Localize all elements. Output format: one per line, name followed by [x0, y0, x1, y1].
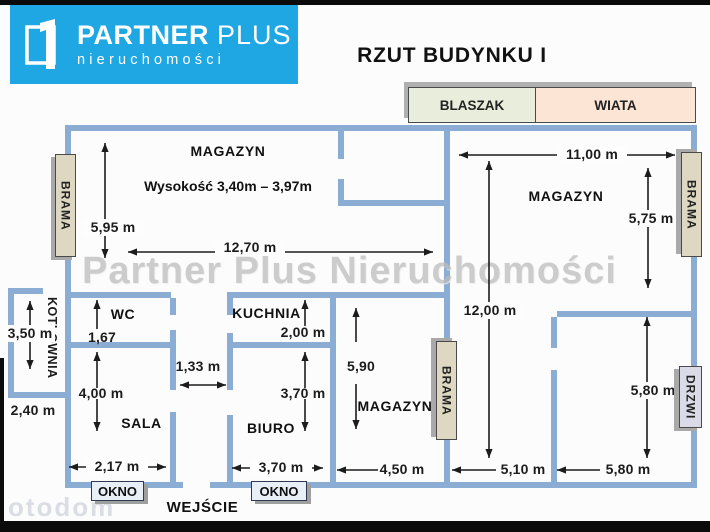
dim-sala-width: 2,17 m — [86, 458, 148, 475]
dim-middle-bottom-width: 5,10 m — [496, 461, 550, 477]
logo-subtitle: nieruchomości — [77, 53, 292, 68]
dim-magazyn-bottom-width: 4,50 m — [374, 461, 430, 477]
drzwi-door: DRZWI — [679, 366, 702, 428]
dim-wc-depth: 1,67 — [82, 329, 122, 345]
scan-artifact-left — [0, 358, 4, 532]
legend-blaszak: BLASZAK — [408, 87, 536, 123]
room-label-kuchnia: KUCHNIA — [229, 305, 304, 321]
logo-one-icon — [24, 17, 68, 73]
agency-logo: PARTNERPLUS nieruchomości — [10, 5, 298, 84]
room-label-kotlownia: KOTŁOWNIA — [45, 297, 59, 389]
legend-wiata: WIATA — [536, 87, 696, 123]
floor-plan-image: PARTNERPLUS nieruchomości RZUT BUDYNKU I… — [0, 0, 710, 532]
room-label-wc: WC — [108, 306, 138, 322]
brama-middle-gate: BRAMA — [436, 341, 457, 440]
room-label-magazyn-top-right: MAGAZYN — [516, 188, 616, 204]
brama-right-gate: BRAMA — [681, 152, 702, 257]
room-label-magazyn-top-left: MAGAZYN — [178, 143, 278, 159]
scan-artifact-bottom — [0, 521, 710, 532]
dim-kotlownia-width: 2,40 m — [7, 402, 59, 418]
okno-left-window: OKNO — [91, 481, 144, 501]
logo-brand-light: PLUS — [217, 20, 292, 50]
dim-sala-height: 4,00 m — [70, 385, 132, 401]
dim-magazyn-bottom-height: 5,90 — [338, 358, 384, 374]
dim-kuchnia-depth: 2,00 m — [272, 324, 334, 340]
height-note: Wysokość 3,40m – 3,97m — [128, 178, 328, 194]
dim-right-section-height: 12,00 m — [455, 302, 525, 319]
dim-magazyn-tl-height: 5,95 m — [83, 219, 143, 236]
entrance-label: WEJŚCIE — [160, 499, 245, 516]
dim-biuro-height: 3,70 m — [272, 385, 334, 401]
dim-right-room-height: 5,80 m — [624, 382, 682, 399]
room-label-magazyn-bottom: MAGAZYN — [352, 398, 438, 414]
brama-left-gate: BRAMA — [55, 154, 76, 257]
legend-strip: BLASZAK WIATA — [408, 87, 696, 123]
room-label-biuro: BIURO — [241, 420, 301, 436]
dim-biuro-width: 3,70 m — [250, 459, 312, 476]
dim-magazyn-tr-width: 11,00 m — [557, 146, 627, 163]
page-title: RZUT BUDYNKU I — [352, 44, 552, 68]
logo-brand-bold: PARTNER — [77, 20, 209, 50]
room-label-sala: SALA — [114, 415, 169, 431]
okno-right-window: OKNO — [251, 481, 307, 501]
dim-corridor-width: 1,33 m — [167, 358, 229, 374]
dim-magazyn-tr-height: 5,75 m — [620, 210, 682, 227]
dim-right-room-width: 5,80 m — [600, 461, 656, 477]
dim-kotlownia-height: 3,50 m — [5, 325, 55, 342]
dim-magazyn-tl-width: 12,70 m — [215, 239, 285, 256]
